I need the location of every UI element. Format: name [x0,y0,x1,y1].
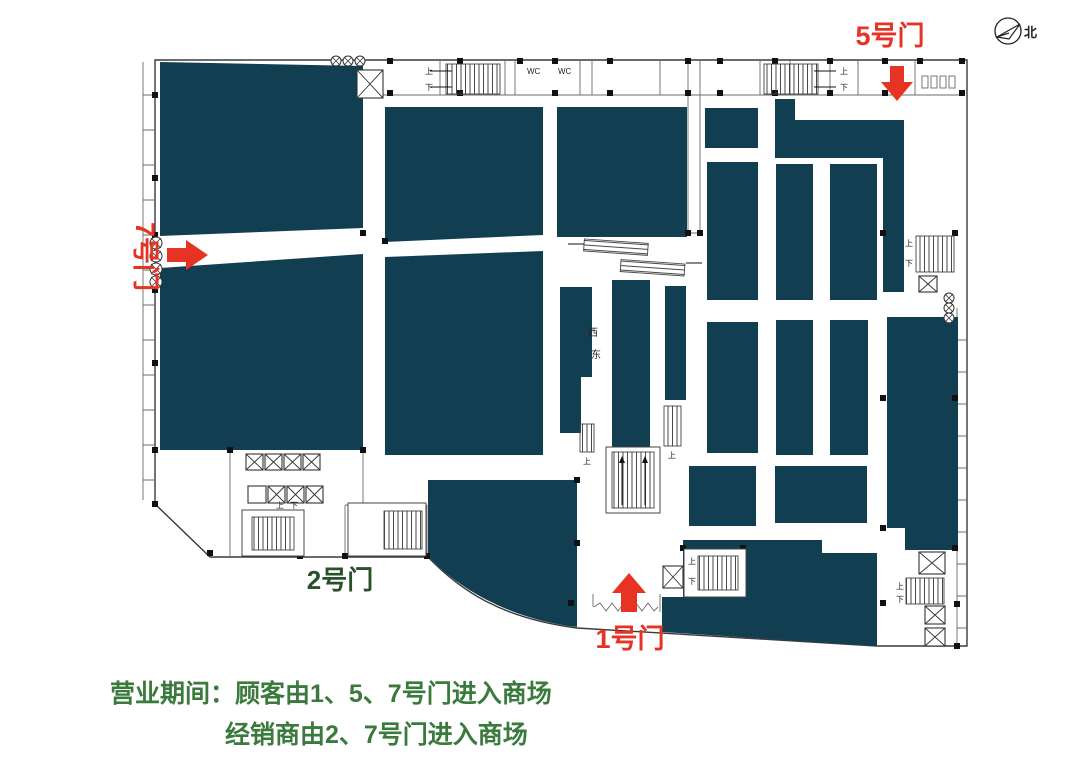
stairs-up-label: 上 [668,451,676,460]
retail-block [385,107,543,242]
stairs-down-label: 下 [840,83,848,92]
business-notice-line-1: 营业期间：顾客由1、5、7号门进入商场 [110,679,552,708]
stairs-icon [446,64,500,94]
escalator-icon [664,406,681,446]
escalator-icon [580,424,594,452]
stairs-icon [764,64,818,94]
stairs-up-label: 上 [425,67,433,76]
retail-block [776,320,813,455]
stairs-down-label: 下 [896,595,904,604]
retail-block [689,466,756,526]
stairs-down-label: 下 [290,501,298,510]
stairs-icon [252,517,294,550]
stairs-up-label: 上 [688,557,696,566]
retail-blocks [160,62,958,646]
north-label: 北 [1024,25,1037,40]
business-notice-line-2: 经销商由2、7号门进入商场 [225,720,528,749]
gate2-label: 2号门 [307,565,373,595]
retail-block [612,280,650,447]
stairs-icon [916,236,954,272]
retail-block [707,322,758,453]
stairs-icon [698,556,738,590]
retail-block [705,108,758,148]
gate1-label: 1号门 [595,624,664,654]
stairs-up-label: 上 [896,582,904,591]
retail-block [557,107,687,237]
gate7-label: 7号门 [130,222,160,291]
wc-label: WC [527,67,541,76]
stairs-icon [384,511,422,549]
retail-block [887,317,958,550]
retail-block [428,480,577,627]
retail-block [160,254,363,450]
east-label: 东 [591,348,601,361]
stairs-icon [906,578,944,604]
retail-block [385,251,543,455]
stairs-icon [612,452,654,508]
stairs-down-label: 下 [688,577,696,586]
stairs-down-label: 下 [425,83,433,92]
retail-block [665,286,686,400]
revolving-door-icon [331,56,365,66]
revolving-door-icon [944,293,954,323]
west-label: 西 [588,328,598,339]
escalator-icon [584,239,649,255]
retail-block [707,162,758,300]
elevator-bank [246,454,323,503]
compass-icon: 北 [995,18,1037,44]
retail-block [776,164,813,300]
floor-plan-page: 5号门 7号门 1号门 2号门 WC WC 西 东 上 下 上 下 上 下 上 … [0,0,1080,763]
gate5-label: 5号门 [855,21,924,51]
gate1-arrow-icon [612,573,646,612]
floor-plan-canvas: 5号门 7号门 1号门 2号门 WC WC 西 东 上 下 上 下 上 下 上 … [0,0,1080,763]
retail-block [160,62,363,236]
retail-block [830,320,868,455]
stairs-up-label: 上 [905,239,913,248]
wc-label: WC [558,67,572,76]
stairs-up-label: 上 [583,457,591,466]
stairs-up-label: 上 [840,67,848,76]
stairs-down-label: 下 [905,259,913,268]
retail-block [560,287,592,433]
retail-block [830,164,877,300]
escalator-icon [620,260,685,276]
retail-block [775,466,867,523]
stairs-up-label: 上 [276,501,284,510]
